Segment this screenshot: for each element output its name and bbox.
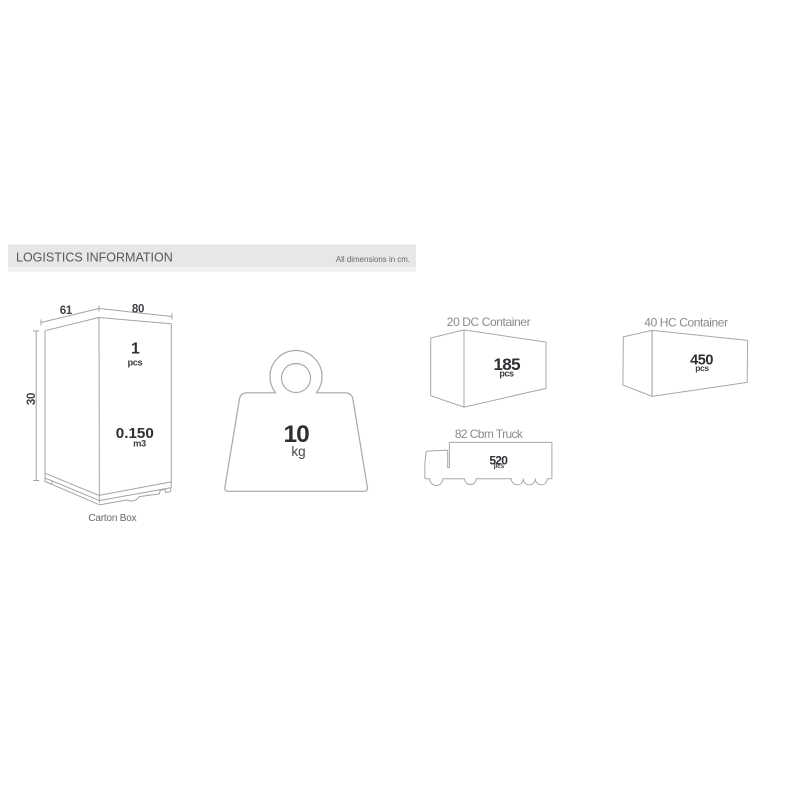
svg-text:pcs: pcs bbox=[127, 358, 142, 368]
svg-text:20 DC Container: 20 DC Container bbox=[447, 315, 531, 329]
svg-text:82 Cbm Truck: 82 Cbm Truck bbox=[455, 427, 524, 441]
svg-text:kg: kg bbox=[291, 444, 305, 459]
svg-text:40 HC Container: 40 HC Container bbox=[644, 316, 728, 330]
svg-text:Carton Box: Carton Box bbox=[88, 513, 136, 524]
svg-text:30: 30 bbox=[26, 393, 38, 405]
svg-text:pcs: pcs bbox=[695, 363, 709, 373]
svg-text:80: 80 bbox=[132, 303, 144, 315]
svg-text:pcs: pcs bbox=[494, 464, 505, 470]
svg-text:1: 1 bbox=[131, 341, 140, 358]
svg-text:61: 61 bbox=[60, 305, 73, 317]
svg-text:LOGISTICS INFORMATION: LOGISTICS INFORMATION bbox=[16, 250, 173, 264]
svg-text:All dimensions in cm.: All dimensions in cm. bbox=[336, 255, 410, 264]
svg-text:m3: m3 bbox=[133, 438, 146, 448]
svg-text:pcs: pcs bbox=[499, 369, 514, 379]
